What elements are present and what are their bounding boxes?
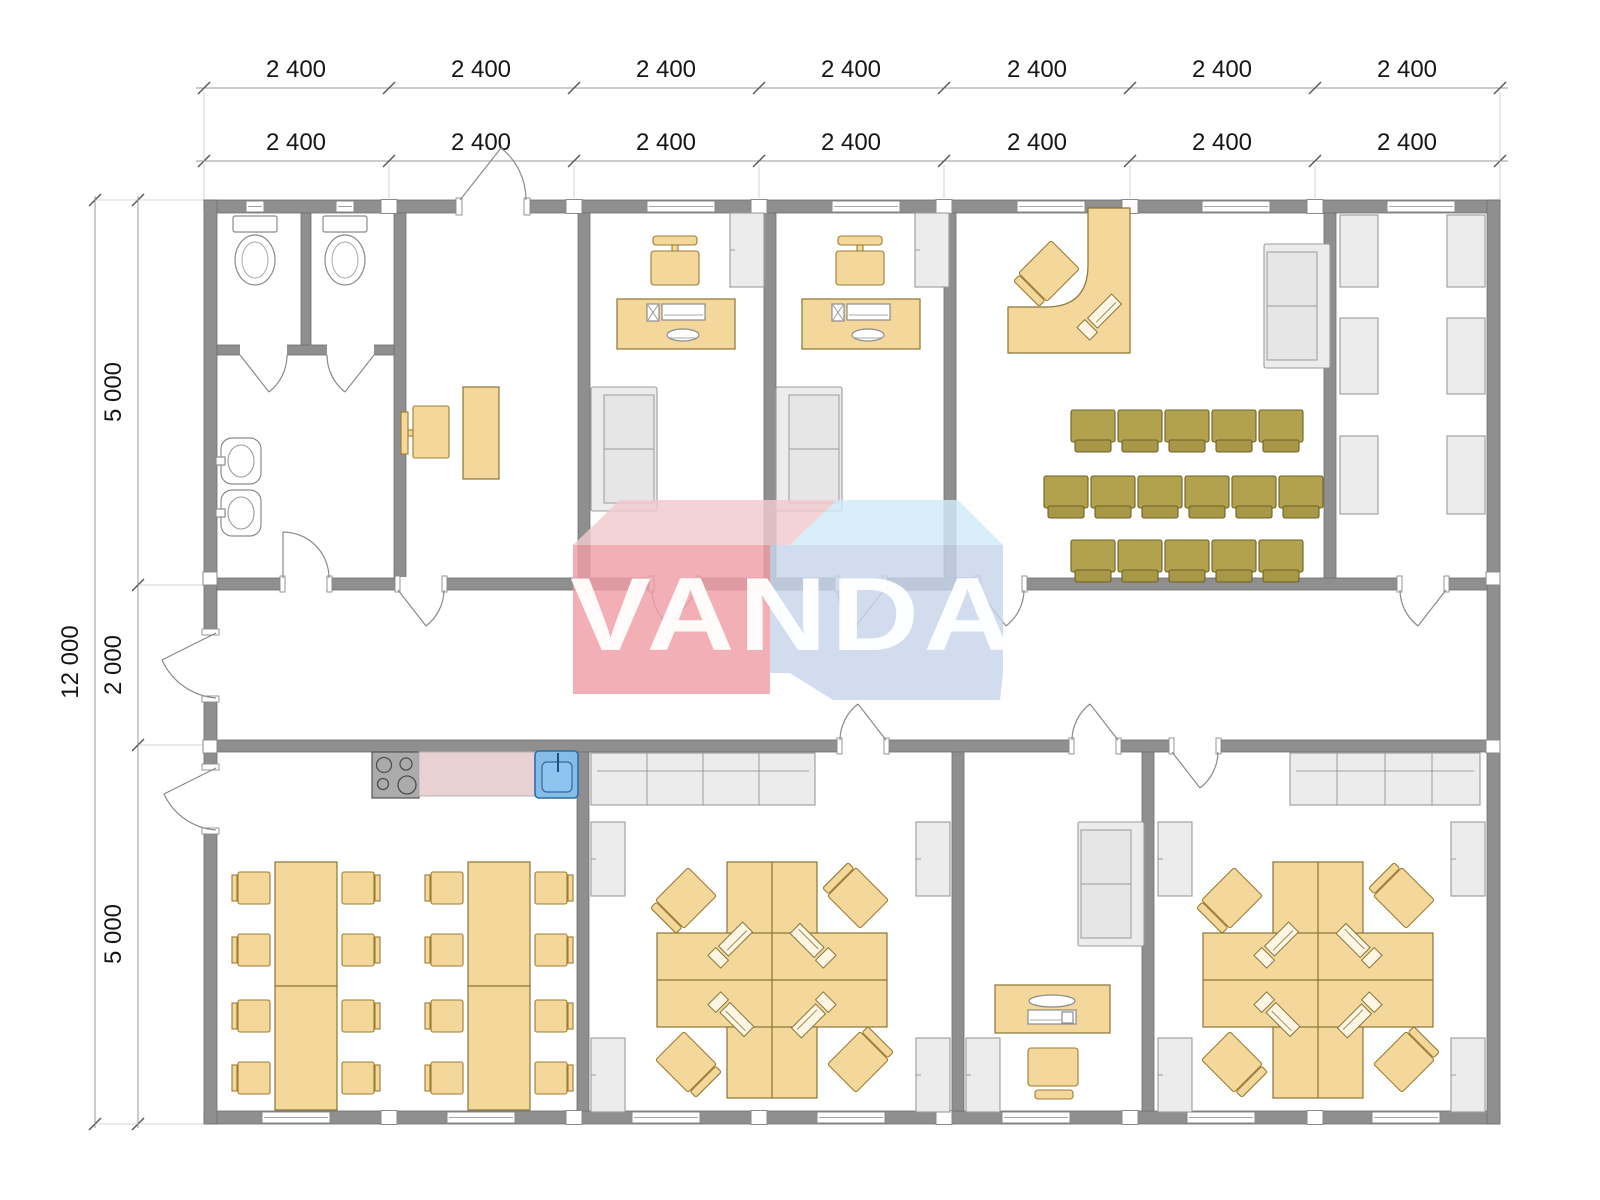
shelf-table	[1340, 318, 1378, 394]
dining-table	[468, 862, 530, 986]
dim-label: 2 400	[821, 129, 881, 156]
window	[647, 201, 715, 212]
dining-set-2	[425, 862, 573, 1110]
dim-label: 2 400	[636, 56, 696, 83]
chair-back	[1035, 1090, 1073, 1099]
shelf-table	[1447, 318, 1485, 394]
window	[1187, 1112, 1255, 1123]
door-office3	[1072, 704, 1118, 740]
dim-label-total: 12 000	[57, 625, 84, 698]
dimension-top-row-2: 2 400 2 400 2 400 2 400 2 400 2 400 2 40…	[196, 129, 1508, 167]
room-workroom1	[591, 753, 950, 1112]
window	[1202, 201, 1270, 212]
window	[1387, 201, 1455, 212]
dimension-left-total: 12 000	[57, 194, 101, 1130]
shelf-table	[1340, 215, 1378, 287]
chair-row-3	[1071, 540, 1303, 582]
cabinet	[1158, 822, 1192, 896]
toilet	[233, 216, 277, 285]
window	[1372, 1112, 1440, 1123]
dim-label: 2 400	[821, 56, 881, 83]
dim-label: 2 400	[1007, 56, 1067, 83]
exterior-wall-right	[1487, 200, 1500, 1124]
room-hall	[401, 387, 499, 479]
kitchen-counter	[419, 752, 535, 796]
dim-label: 2 400	[451, 129, 511, 156]
window	[447, 1112, 515, 1123]
room-office1	[591, 213, 764, 511]
cabinet	[591, 822, 625, 896]
swivel-chair	[1012, 241, 1079, 308]
workstation-cluster	[649, 861, 895, 1099]
monitor	[1029, 995, 1075, 1007]
dim-label: 2 400	[636, 129, 696, 156]
sofa	[591, 387, 657, 511]
window	[632, 1112, 700, 1123]
desk	[995, 985, 1110, 1033]
dining-set-1	[232, 862, 380, 1110]
watermark-text: VANDA	[570, 557, 1016, 673]
sink	[216, 438, 261, 484]
wardrobe-row	[591, 753, 815, 805]
room-office3	[966, 822, 1144, 1112]
dim-label: 5 000	[100, 362, 127, 422]
door-wc1	[240, 355, 287, 392]
chair-row-2	[1044, 476, 1323, 518]
room-conference	[1008, 208, 1330, 582]
task-chair	[651, 236, 699, 285]
dining-table	[468, 986, 530, 1110]
shelf-table	[1447, 436, 1485, 514]
window	[832, 201, 900, 212]
cabinet	[1451, 822, 1485, 896]
room-storage	[1340, 215, 1485, 514]
wall-washroom-hall	[394, 213, 406, 578]
dim-label: 2 400	[1007, 129, 1067, 156]
wall-wc-divider	[301, 213, 311, 353]
dining-table	[275, 986, 337, 1110]
room-workroom2	[1158, 753, 1485, 1112]
dim-label: 2 400	[1377, 129, 1437, 156]
window	[246, 201, 264, 212]
cabinet	[1158, 1038, 1192, 1112]
floor-plan-canvas: 2 400 2 400 2 400 2 400 2 400 2 400 2 40…	[0, 0, 1600, 1200]
workstation-cluster	[1195, 861, 1441, 1099]
cabinet	[916, 1038, 950, 1112]
watermark-blue-bottom-face	[790, 673, 1003, 700]
door-wc2	[327, 355, 374, 392]
sofa	[776, 387, 842, 511]
wardrobe-row	[1290, 753, 1480, 805]
door-storage	[1400, 590, 1446, 626]
window	[1017, 201, 1085, 212]
sofa	[1078, 822, 1144, 946]
chair-seat	[1028, 1048, 1078, 1086]
dim-label: 2 400	[1192, 129, 1252, 156]
floor-plan-page: 2 400 2 400 2 400 2 400 2 400 2 400 2 40…	[0, 0, 1600, 1200]
room-office2	[776, 213, 949, 511]
dining-table	[275, 862, 337, 986]
sofa	[1264, 244, 1330, 368]
chair-row-1	[1071, 410, 1303, 452]
task-chair	[836, 236, 884, 285]
door-hall	[398, 590, 444, 626]
room-washroom	[216, 438, 261, 536]
reception-desk	[463, 387, 499, 479]
wall-workroom1-office3	[952, 752, 964, 1111]
dim-label: 2 400	[1377, 56, 1437, 83]
wall-canteen-workroom1	[577, 752, 589, 1111]
window	[262, 1112, 330, 1123]
kitchen-sink	[535, 751, 578, 798]
cabinet	[730, 213, 764, 287]
chair-seat	[413, 406, 449, 458]
shelf-table	[1447, 215, 1485, 287]
dim-label: 2 400	[451, 56, 511, 83]
wall-hall-office1	[578, 213, 590, 578]
window	[817, 1112, 885, 1123]
door-workroom1	[840, 704, 886, 740]
window	[1002, 1112, 1070, 1123]
room-canteen	[232, 751, 578, 1110]
dim-label: 2 400	[266, 129, 326, 156]
cabinet	[915, 213, 949, 287]
door-washroom	[283, 532, 329, 578]
toilet	[323, 216, 367, 285]
desk-with-computer	[802, 299, 920, 349]
watermark: VANDA	[570, 500, 1016, 700]
dimension-left-segments: 5 000 2 000 5 000	[100, 194, 144, 1130]
dim-label: 2 400	[1192, 56, 1252, 83]
dimension-top-row-1: 2 400 2 400 2 400 2 400 2 400 2 400 2 40…	[196, 56, 1508, 94]
desk-with-computer	[617, 299, 735, 349]
dim-label: 5 000	[100, 904, 127, 964]
door-workroom2	[1172, 752, 1218, 788]
sink	[216, 490, 261, 536]
cabinet	[591, 1038, 625, 1112]
room-toilets	[233, 216, 367, 285]
window	[336, 201, 354, 212]
cabinet	[966, 1038, 1000, 1112]
cabinet	[1451, 1038, 1485, 1112]
dim-label: 2 000	[100, 635, 127, 695]
cabinet	[916, 822, 950, 896]
dim-label: 2 400	[266, 56, 326, 83]
chair-back	[401, 412, 408, 454]
shelf-table	[1340, 436, 1378, 514]
